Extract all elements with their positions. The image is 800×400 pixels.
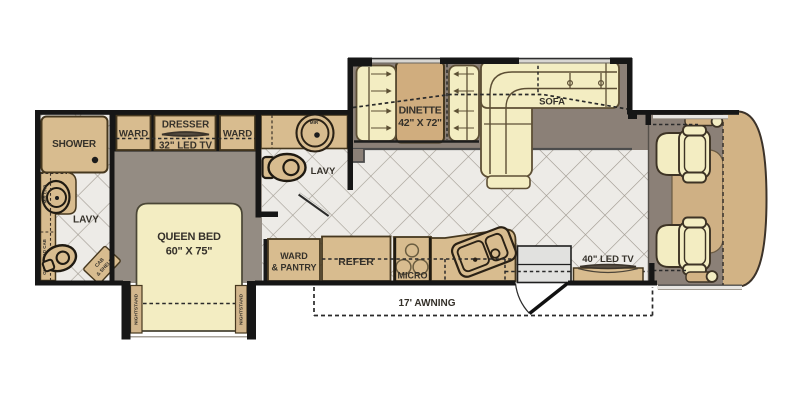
svg-text:40" LED TV: 40" LED TV bbox=[582, 254, 634, 265]
svg-text:42" X 72": 42" X 72" bbox=[398, 117, 442, 129]
svg-text:MIR: MIR bbox=[310, 120, 319, 125]
svg-text:REFER: REFER bbox=[338, 256, 374, 268]
svg-text:MIR CAB: MIR CAB bbox=[43, 185, 48, 204]
svg-text:NIGHTSTAND: NIGHTSTAND bbox=[239, 293, 245, 325]
svg-text:MICRO: MICRO bbox=[398, 271, 428, 281]
svg-text:SOFA: SOFA bbox=[539, 97, 565, 108]
svg-text:DRESSER: DRESSER bbox=[162, 120, 209, 131]
svg-text:LAVY: LAVY bbox=[311, 166, 336, 177]
svg-text:32" LED TV: 32" LED TV bbox=[159, 141, 213, 152]
svg-text:NIGHTSTAND: NIGHTSTAND bbox=[134, 293, 140, 325]
svg-text:& PANTRY: & PANTRY bbox=[272, 263, 317, 273]
svg-text:WARD: WARD bbox=[280, 251, 308, 261]
svg-text:SHOWER: SHOWER bbox=[52, 139, 97, 150]
svg-text:DINETTE: DINETTE bbox=[399, 105, 442, 117]
svg-text:60" X 75": 60" X 75" bbox=[166, 246, 213, 258]
svg-text:LAVY: LAVY bbox=[73, 215, 99, 226]
svg-text:17' AWNING: 17' AWNING bbox=[398, 298, 455, 309]
svg-text:QUEEN BED: QUEEN BED bbox=[157, 231, 221, 243]
